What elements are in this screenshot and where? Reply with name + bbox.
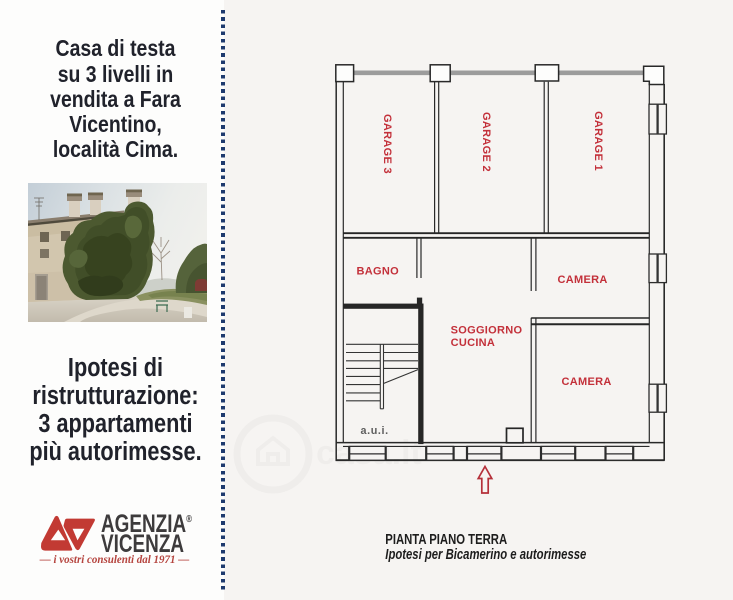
svg-text:Ipotesi per Bicamerino e autor: Ipotesi per Bicamerino e autorimesse (385, 545, 586, 562)
svg-text:BAGNO: BAGNO (357, 266, 400, 278)
svg-text:CAMERA: CAMERA (558, 274, 608, 286)
svg-text:a.u.i.: a.u.i. (361, 425, 389, 437)
svg-text:GARAGE 2: GARAGE 2 (480, 112, 492, 172)
svg-text:SOGGIORNO: SOGGIORNO (451, 324, 523, 336)
svg-text:CAMERA: CAMERA (562, 376, 612, 388)
svg-text:CUCINA: CUCINA (451, 337, 496, 349)
svg-text:GARAGE 3: GARAGE 3 (381, 114, 393, 174)
svg-text:GARAGE 1: GARAGE 1 (592, 111, 604, 171)
